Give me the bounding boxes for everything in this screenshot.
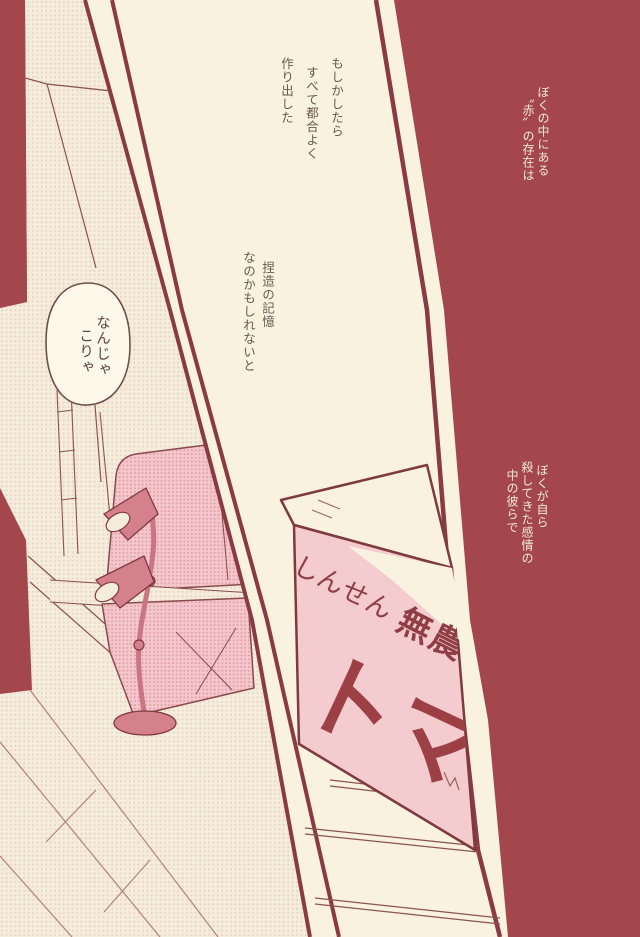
narration-right-top: ぼくの中にある 〝赤〟の存在は xyxy=(520,86,550,182)
monologue-top: もしかしたら すべて都合よく 作り出した xyxy=(274,57,349,161)
bubble-line: なんじゃ xyxy=(93,315,110,377)
lamp-joint-lower xyxy=(134,640,144,650)
monologue-line: もしかしたら xyxy=(324,57,349,161)
narration-line: ぼくが自ら xyxy=(534,464,549,565)
monologue-line: 捏造の記憶 xyxy=(258,261,277,373)
manga-page: しんせん 無農 トマ ぼくの中にある 〝赤〟の存在は ぼくが自ら 殺してきた感情… xyxy=(0,0,640,937)
bubble-line: こりゃ xyxy=(76,328,93,377)
narration-right-mid: ぼくが自ら 殺してきた感情の 中の彼らで xyxy=(504,461,549,565)
monologue-line: すべて都合よく xyxy=(299,66,324,161)
narration-line: 〝赤〟の存在は xyxy=(520,91,535,182)
lamp-base xyxy=(114,711,176,735)
narration-line: 殺してきた感情の xyxy=(519,461,534,565)
monologue-mid: 捏造の記憶 なのかもしれないと xyxy=(239,251,277,373)
monologue-line: 作り出した xyxy=(274,57,299,161)
speech-bubble-text: なんじゃ こりゃ xyxy=(76,315,110,377)
narration-line: 中の彼らで xyxy=(504,469,519,565)
monologue-line: なのかもしれないと xyxy=(239,251,258,373)
narration-line: ぼくの中にある xyxy=(535,86,550,182)
